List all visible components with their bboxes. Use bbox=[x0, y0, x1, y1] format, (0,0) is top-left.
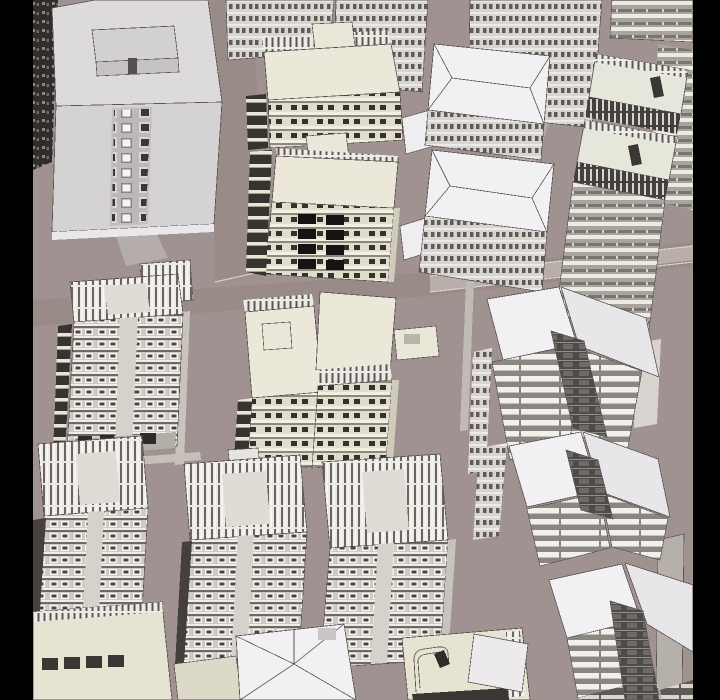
model-viewport[interactable] bbox=[0, 0, 720, 700]
window bbox=[108, 655, 124, 667]
building-tower-top-left bbox=[33, 0, 222, 240]
facade bbox=[312, 380, 392, 468]
roof-box bbox=[318, 628, 336, 640]
win bbox=[326, 245, 344, 255]
win bbox=[298, 229, 316, 239]
city-render bbox=[0, 0, 720, 700]
win bbox=[326, 230, 344, 240]
win bbox=[326, 215, 344, 225]
annex-roof bbox=[404, 334, 420, 344]
roof bbox=[245, 306, 322, 398]
building-white-hip-podium bbox=[236, 624, 356, 700]
bg-slab-topright bbox=[610, 0, 693, 42]
roof-panel bbox=[222, 471, 270, 527]
window bbox=[86, 656, 102, 668]
roof bbox=[272, 156, 398, 208]
window bbox=[64, 657, 80, 669]
balcony-stack bbox=[246, 94, 268, 150]
window-strip bbox=[112, 109, 150, 224]
roof-panel bbox=[104, 283, 150, 315]
low-white-tray bbox=[468, 634, 528, 692]
penthouse-door bbox=[128, 58, 137, 74]
building-slat-tower-mid-left bbox=[53, 260, 193, 456]
letterbox-left bbox=[0, 0, 33, 700]
building-cream-tower-lower bbox=[246, 133, 400, 282]
roof-box bbox=[262, 322, 292, 350]
roof bbox=[264, 44, 400, 100]
building-cream-podium bbox=[33, 602, 172, 700]
win bbox=[298, 244, 316, 254]
roof-panel bbox=[362, 469, 409, 533]
roof-panel bbox=[76, 451, 120, 505]
win bbox=[326, 260, 344, 270]
roof bbox=[316, 292, 396, 374]
win bbox=[298, 259, 316, 269]
roof-penthouse bbox=[92, 26, 178, 62]
win bbox=[298, 214, 316, 224]
low-cream-block bbox=[174, 656, 242, 700]
window bbox=[42, 658, 58, 670]
building-cream-tower-upper bbox=[246, 22, 403, 150]
letterbox-right bbox=[693, 0, 720, 700]
